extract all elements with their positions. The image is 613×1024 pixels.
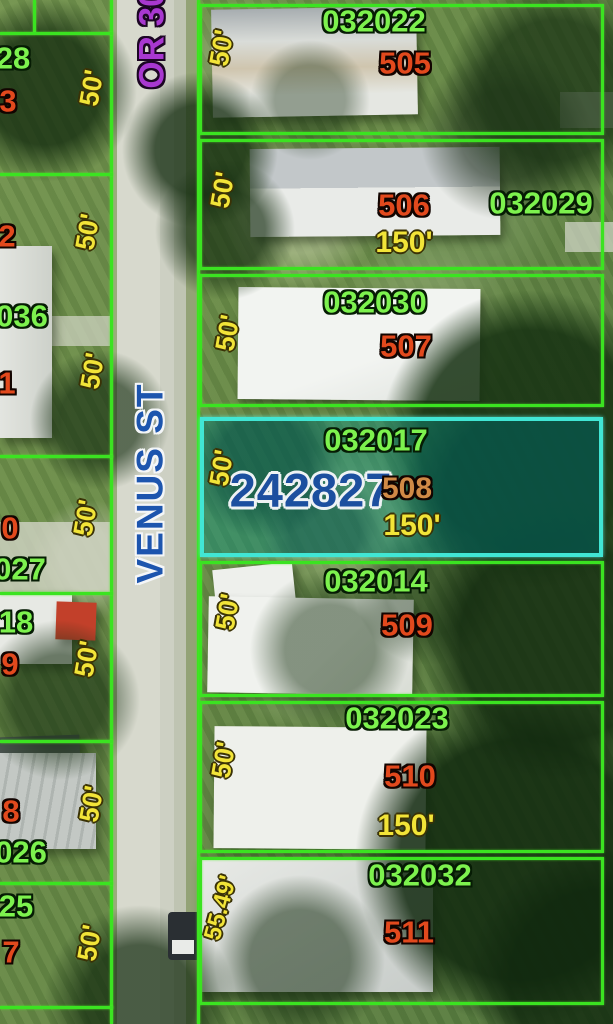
- dimension-label: 50': [70, 498, 103, 539]
- parcel-boundary-line: [110, 0, 113, 1024]
- parcel-id-label: 032023: [345, 703, 448, 734]
- selected-lot-number-label: 508: [382, 474, 432, 504]
- dimension-label: 50': [212, 313, 245, 354]
- parcel-id-label: 026: [0, 837, 47, 868]
- street-label-or-30: OR 30: [135, 0, 170, 89]
- lot-number-label: 510: [384, 761, 436, 792]
- dimension-label: 50': [77, 351, 110, 392]
- red-roof-structure: [55, 601, 96, 640]
- parcel-boundary-line: [0, 455, 113, 458]
- lot-number-label: 7: [2, 937, 19, 968]
- dimension-label: 50': [207, 170, 240, 211]
- parcel-id-label: 032014: [324, 566, 427, 597]
- dimension-label: 50': [76, 68, 109, 109]
- parcel-boundary-line: [33, 0, 36, 33]
- parcel-id-label: 036: [0, 301, 48, 332]
- parcel-boundary-line: [0, 1006, 113, 1009]
- dimension-label: 50': [76, 784, 109, 825]
- lot-number-label: 3: [0, 86, 17, 117]
- parcel-id-label: 28: [0, 43, 30, 74]
- dimension-label: 50': [71, 639, 104, 680]
- parcel-id-label: 18: [0, 607, 33, 638]
- lot-number-label: 9: [1, 649, 18, 680]
- lot-number-label: 509: [381, 610, 433, 641]
- lot-number-label: 506: [378, 190, 430, 221]
- parcel-id-label: 032022: [322, 6, 425, 37]
- lot-number-label: 1: [0, 368, 16, 399]
- parcel-id-label: 25: [0, 891, 33, 922]
- parcel-id-label: 032030: [323, 287, 426, 318]
- parcel-boundary-line: [0, 592, 113, 595]
- parcel-boundary-line: [0, 32, 113, 35]
- aerial-parcel-map[interactable]: 032022 505 50' 506 032029 50' 150' 03203…: [0, 0, 613, 1024]
- lot-number-label: 511: [384, 917, 434, 948]
- dimension-label: 150': [375, 228, 432, 258]
- dimension-label: 50': [74, 923, 107, 964]
- dimension-label: 50': [206, 448, 239, 489]
- parcel-boundary-line: [0, 173, 113, 176]
- selected-parcel-number: 242827: [230, 467, 393, 514]
- dimension-label: 50': [72, 212, 105, 253]
- parcel-id-label: 027: [0, 554, 46, 585]
- parcel-boundary-line: [0, 740, 113, 743]
- building-west: [0, 246, 52, 438]
- lot-number-label: 2: [0, 221, 16, 252]
- parcel-id-label: 032032: [368, 860, 471, 891]
- lot-number-label: 507: [380, 331, 432, 362]
- lot-number-label: 505: [379, 48, 431, 79]
- selected-parcel-id-label: 032017: [324, 425, 427, 456]
- dimension-label: 50': [206, 28, 239, 69]
- dimension-label: 150': [383, 511, 440, 541]
- street-label-venus-st: VENUS ST: [132, 382, 169, 583]
- parcel-boundary-line: [0, 882, 113, 885]
- parcel-id-label: 032029: [489, 188, 592, 219]
- dimension-label: 50': [208, 740, 241, 781]
- dimension-label: 150': [377, 811, 434, 841]
- lot-number-label: 8: [2, 796, 19, 827]
- lot-number-label: 0: [1, 513, 18, 544]
- dimension-label: 50': [212, 592, 245, 633]
- vehicle-on-road: [172, 940, 194, 954]
